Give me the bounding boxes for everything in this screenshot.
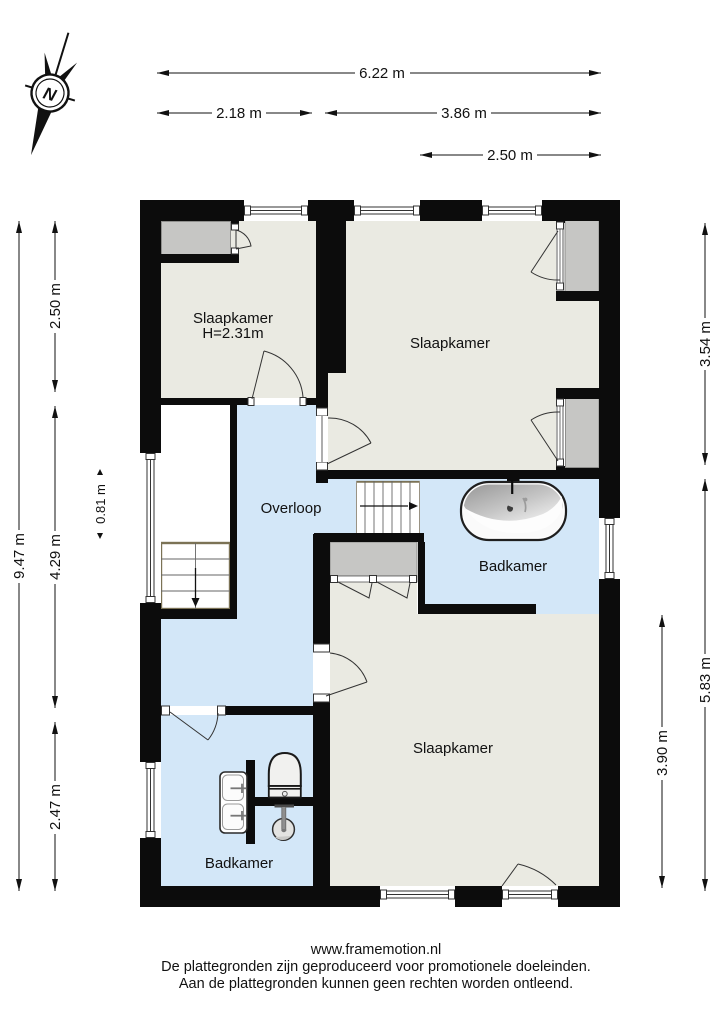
- svg-text:H=2.31m: H=2.31m: [202, 325, 263, 342]
- svg-text:Badkamer: Badkamer: [479, 558, 547, 575]
- svg-text:6.22 m: 6.22 m: [359, 65, 405, 82]
- svg-text:2.50 m: 2.50 m: [47, 283, 64, 329]
- svg-text:4.29 m: 4.29 m: [47, 534, 64, 580]
- svg-text:5.83 m: 5.83 m: [697, 657, 714, 703]
- svg-text:3.86 m: 3.86 m: [441, 105, 487, 122]
- svg-text:Overloop: Overloop: [261, 500, 322, 517]
- svg-text:2.18 m: 2.18 m: [216, 105, 262, 122]
- svg-text:9.47 m: 9.47 m: [11, 533, 28, 579]
- svg-text:www.framemotion.nl: www.framemotion.nl: [310, 942, 442, 958]
- svg-text:3.90 m: 3.90 m: [654, 730, 671, 776]
- svg-text:Slaapkamer: Slaapkamer: [410, 335, 490, 352]
- svg-text:Aan de plattegronden kunnen ge: Aan de plattegronden kunnen geen rechten…: [179, 976, 573, 992]
- svg-text:Badkamer: Badkamer: [205, 855, 273, 872]
- svg-text:Slaapkamer: Slaapkamer: [413, 740, 493, 757]
- svg-text:3.54 m: 3.54 m: [697, 321, 714, 367]
- svg-text:De plattegronden zijn geproduc: De plattegronden zijn geproduceerd voor …: [161, 959, 591, 975]
- svg-text:2.47 m: 2.47 m: [47, 784, 64, 830]
- svg-text:0.81 m: 0.81 m: [93, 484, 108, 524]
- svg-text:2.50 m: 2.50 m: [487, 147, 533, 164]
